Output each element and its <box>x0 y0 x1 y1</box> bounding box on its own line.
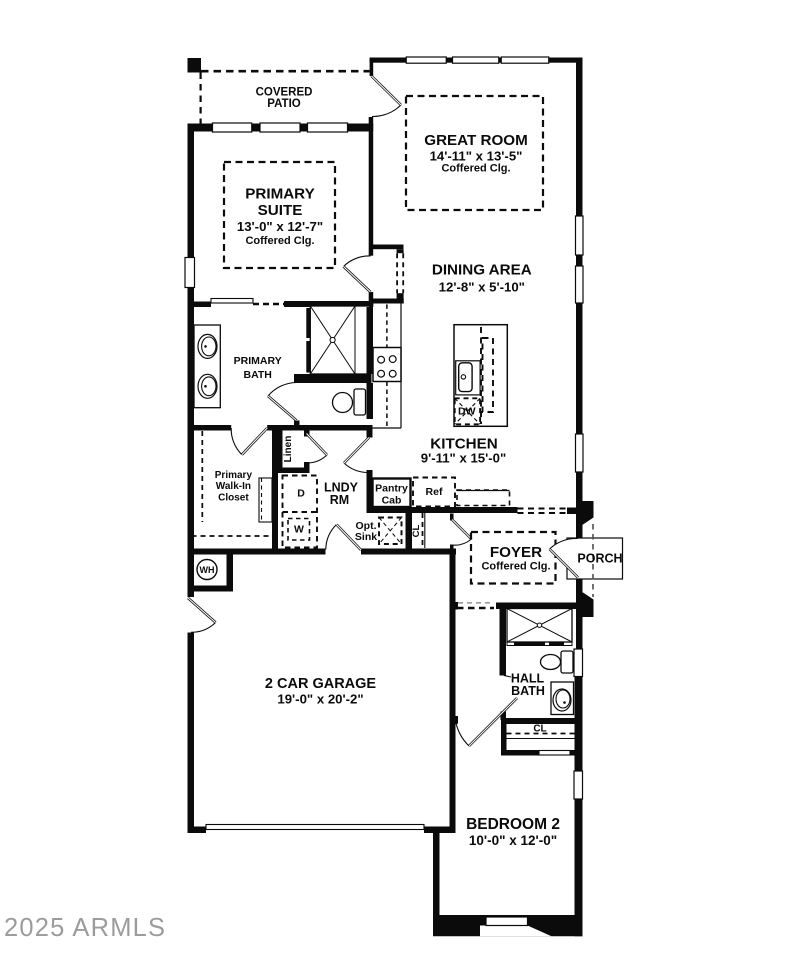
svg-text:13'-0" x 12'-7": 13'-0" x 12'-7" <box>237 219 323 234</box>
svg-text:2 CAR GARAGE: 2 CAR GARAGE <box>265 676 377 692</box>
svg-text:Coffered Clg.: Coffered Clg. <box>481 561 550 573</box>
svg-text:CL: CL <box>411 524 422 537</box>
svg-text:9'-11" x 15'-0": 9'-11" x 15'-0" <box>421 451 507 466</box>
svg-text:Primary: Primary <box>215 470 253 481</box>
svg-text:PORCH: PORCH <box>577 552 622 566</box>
svg-text:RM: RM <box>330 493 349 507</box>
svg-text:DW: DW <box>458 405 476 417</box>
svg-text:BEDROOM 2: BEDROOM 2 <box>466 816 560 833</box>
svg-text:PRIMARY: PRIMARY <box>245 186 314 203</box>
svg-text:Closet: Closet <box>218 492 249 503</box>
svg-text:19'-0" x 20'-2": 19'-0" x 20'-2" <box>277 692 363 707</box>
svg-text:Sink: Sink <box>355 531 377 543</box>
svg-text:BATH: BATH <box>511 684 545 698</box>
svg-text:COVERED: COVERED <box>256 87 313 99</box>
svg-text:Walk-In: Walk-In <box>216 481 251 492</box>
svg-text:12'-8" x 5'-10": 12'-8" x 5'-10" <box>439 279 525 294</box>
svg-text:CL: CL <box>533 724 546 735</box>
svg-text:2025 ARMLS: 2025 ARMLS <box>4 914 166 942</box>
svg-text:FOYER: FOYER <box>490 544 542 561</box>
svg-text:GREAT ROOM: GREAT ROOM <box>424 132 528 149</box>
svg-text:Coffered Clg.: Coffered Clg. <box>441 163 510 175</box>
svg-text:Linen: Linen <box>283 436 294 463</box>
svg-text:PRIMARY: PRIMARY <box>234 355 282 367</box>
svg-text:PATIO: PATIO <box>267 98 300 110</box>
svg-text:W: W <box>294 524 304 536</box>
svg-text:10'-0" x 12'-0": 10'-0" x 12'-0" <box>469 833 557 848</box>
svg-text:14'-11" x 13'-5": 14'-11" x 13'-5" <box>430 149 523 164</box>
svg-text:Cab: Cab <box>382 495 402 507</box>
svg-text:Ref: Ref <box>426 486 443 498</box>
svg-text:WH: WH <box>200 565 215 575</box>
svg-text:D: D <box>297 488 305 500</box>
svg-text:SUITE: SUITE <box>258 202 303 219</box>
svg-text:BATH: BATH <box>244 369 272 381</box>
svg-text:DINING AREA: DINING AREA <box>432 261 532 278</box>
svg-text:Coffered Clg.: Coffered Clg. <box>245 235 314 247</box>
svg-text:Pantry: Pantry <box>375 483 408 495</box>
